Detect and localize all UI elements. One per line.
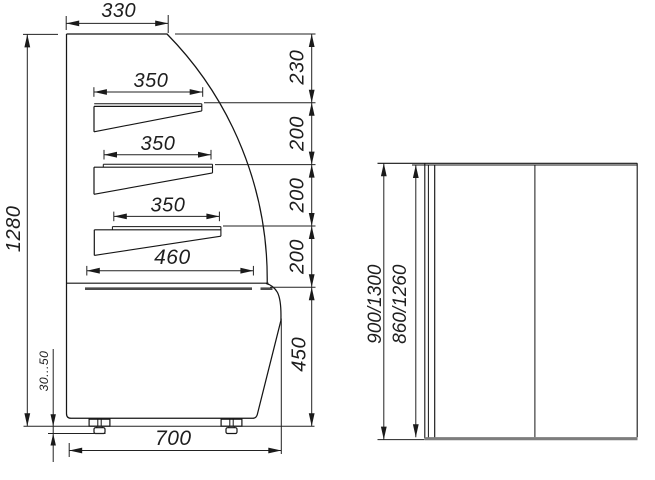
svg-text:350: 350 [140,133,175,155]
svg-text:350: 350 [150,194,185,216]
svg-text:200: 200 [287,239,309,275]
svg-text:860/1260: 860/1260 [390,264,411,344]
svg-text:230: 230 [287,50,309,86]
svg-text:330: 330 [101,0,136,22]
svg-text:460: 460 [154,246,191,269]
svg-text:900/1300: 900/1300 [365,264,386,344]
svg-text:30...50: 30...50 [37,351,51,392]
svg-text:450: 450 [289,337,311,372]
svg-text:350: 350 [133,70,168,92]
svg-text:1280: 1280 [3,206,25,253]
svg-text:200: 200 [287,116,309,152]
svg-text:200: 200 [287,178,309,214]
svg-text:700: 700 [155,427,192,450]
